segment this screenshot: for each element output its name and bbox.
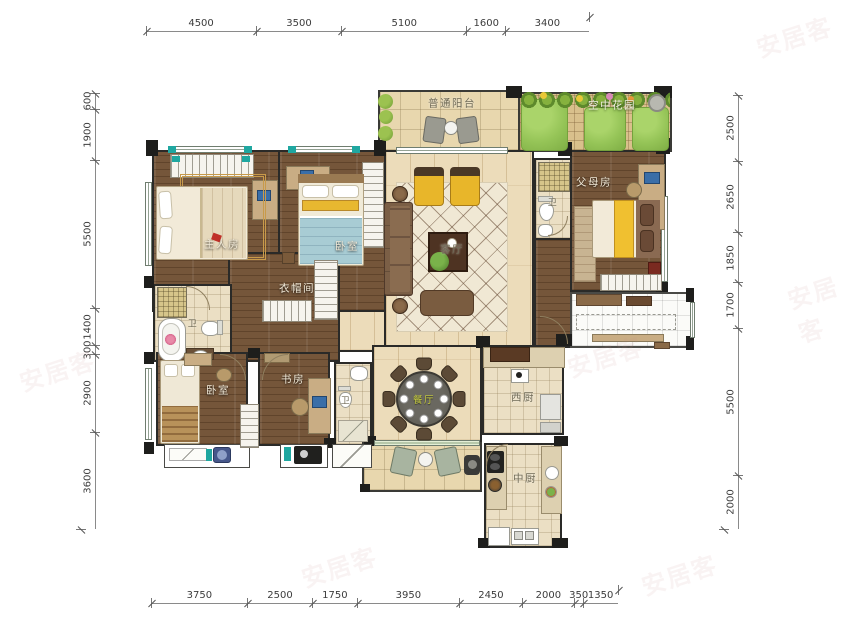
grass-patch	[584, 107, 626, 151]
sink-basin-icon	[525, 531, 534, 540]
label-chinese-kitchen: 中厨	[513, 471, 537, 486]
bay-sill-panel	[169, 448, 207, 461]
window-living-balcony	[396, 147, 508, 154]
dim-bottom-5: 2450	[478, 590, 503, 601]
dryer-icon	[294, 446, 322, 464]
wall-pier	[374, 140, 386, 156]
watermark-text: 安居客	[637, 545, 722, 602]
dim-bottom-1: 3750	[187, 590, 212, 601]
plate-icon	[440, 395, 449, 404]
kitchen-table	[488, 527, 510, 546]
pillow	[640, 204, 654, 226]
flower-decor-icon	[165, 334, 176, 345]
wall-pier	[146, 140, 158, 156]
dim-left-4: 1400	[83, 314, 94, 339]
label-sky-garden: 空中花园	[588, 98, 636, 113]
entry-door-leaf	[654, 342, 670, 349]
watermark-text: 安居客	[783, 265, 850, 349]
label-bedroom-3: 卧室	[206, 383, 230, 398]
fridge-icon	[540, 394, 561, 420]
stone-circle	[648, 94, 666, 112]
dim-right-1: 2500	[726, 116, 737, 141]
label-dining: 餐厅	[413, 392, 435, 406]
dim-top-5: 3400	[535, 18, 560, 29]
dim-top-2: 3500	[286, 18, 311, 29]
dim-bottom-8: 1350	[588, 590, 613, 601]
balcony-chair	[422, 116, 446, 145]
planter-icon	[379, 110, 393, 124]
label-bath-3: 卫	[341, 394, 352, 407]
shower-icon	[538, 162, 570, 192]
plate-icon	[420, 375, 429, 384]
wall-pier	[686, 336, 694, 350]
dim-right-2: 2650	[726, 185, 737, 210]
wall-pier	[360, 484, 370, 492]
pillow	[164, 364, 178, 377]
laptop-icon	[644, 172, 660, 184]
dim-bottom-2: 2500	[267, 590, 292, 601]
laundry-item	[284, 447, 291, 461]
dimension-ruler-left: 600 1900 5500 1400 300 2900 3600	[81, 93, 96, 529]
wardrobe-accent	[242, 156, 250, 162]
wall-pier	[686, 288, 694, 302]
bed-runner-yellow	[614, 200, 634, 258]
label-master-bedroom: 主人房	[204, 237, 240, 252]
window-accent	[288, 146, 296, 153]
wardrobe	[240, 404, 259, 448]
pillow	[158, 226, 173, 255]
blanket-patterned	[162, 406, 198, 442]
window-bedroom3-left	[145, 368, 152, 440]
sofa-cushions	[390, 206, 410, 292]
pillow	[640, 230, 654, 252]
wardrobe	[362, 162, 384, 248]
wardrobe	[262, 300, 312, 322]
dim-right-3: 1850	[726, 245, 737, 270]
dim-bottom-3: 1750	[322, 590, 347, 601]
wardrobe	[314, 260, 338, 320]
wardrobe-accent	[172, 156, 180, 162]
laptop-icon	[312, 396, 327, 408]
armchair-back	[450, 167, 480, 176]
washer-drum-icon	[217, 450, 227, 460]
plate-icon	[545, 466, 559, 480]
sink-basin-icon	[514, 531, 523, 540]
window-accent	[352, 146, 360, 153]
dining-chair	[416, 428, 432, 441]
bed-runner	[302, 200, 359, 211]
side-table	[392, 298, 408, 314]
kitchen-counter	[541, 446, 562, 514]
plate-icon	[400, 395, 409, 404]
label-balcony: 普通阳台	[428, 96, 476, 111]
wall-pier	[248, 348, 260, 358]
nightstand	[282, 252, 295, 264]
pillow	[302, 185, 329, 198]
stool	[626, 182, 642, 198]
dressing-table	[184, 353, 212, 366]
window-accent	[168, 146, 176, 153]
window-landing-right	[690, 302, 695, 338]
entry-shelf	[592, 334, 664, 342]
floorplan-canvas: 4500 3500 5100 1600 3400 3750 2500 1750 …	[0, 0, 850, 638]
dim-right-6: 2000	[726, 489, 737, 514]
dim-left-2: 1900	[83, 122, 94, 147]
flower-icon	[576, 95, 583, 102]
shoe-cabinet	[576, 294, 622, 306]
shoe-cabinet	[626, 296, 652, 306]
window-master-left	[145, 182, 152, 266]
dish-icon	[545, 486, 557, 498]
counter-dark	[490, 347, 530, 362]
desk-chair	[291, 398, 309, 416]
dimension-ruler-right: 2500 2650 1850 1700 5500 2000	[724, 95, 739, 529]
label-master-bath: 卫	[188, 317, 199, 330]
window-terrace-sill	[374, 440, 480, 446]
toilet-tank-icon	[338, 386, 351, 391]
label-cloakroom: 衣帽间	[279, 281, 315, 296]
bay-window-3	[332, 444, 372, 468]
pillow	[332, 185, 359, 198]
entry-dashed-zone	[576, 314, 676, 330]
wall-pier	[144, 276, 154, 288]
side-table	[392, 186, 408, 202]
plate-icon	[420, 415, 429, 424]
flower-icon	[540, 92, 547, 99]
headboard	[298, 174, 364, 183]
dryer-knob-icon	[300, 450, 308, 458]
dim-right-4: 1700	[726, 293, 737, 318]
planter-icon	[378, 94, 393, 109]
dim-top-3: 5100	[391, 18, 416, 29]
wall-pier	[144, 442, 154, 454]
dim-top-4: 1600	[473, 18, 498, 29]
bath-mat	[338, 420, 368, 442]
dimension-ruler-bottom: 3750 2500 1750 3950 2450 2000 350 1350	[151, 590, 618, 604]
sink-icon	[350, 366, 368, 381]
balcony-table	[444, 121, 458, 135]
outdoor-sink-bowl-icon	[468, 460, 477, 469]
wall-pier	[552, 538, 568, 548]
shower-icon	[157, 287, 187, 318]
dining-chair	[383, 391, 396, 407]
dim-right-5: 5500	[726, 389, 737, 414]
cabinet	[540, 422, 561, 433]
dim-left-3: 5500	[83, 222, 94, 247]
pillow	[158, 191, 173, 220]
window-accent	[244, 146, 252, 153]
dim-left-7: 3600	[83, 468, 94, 493]
dining-chair	[453, 391, 466, 407]
label-bedroom-2: 卧室	[335, 239, 359, 254]
label-bath-2: 卫	[548, 196, 559, 209]
dimension-ruler-top: 4500 3500 5100 1600 3400	[146, 17, 589, 32]
toilet-tank-icon	[217, 320, 223, 335]
dim-top-1: 4500	[188, 18, 213, 29]
window-bedroom2-top	[288, 146, 360, 153]
appliance-knob-icon	[516, 372, 522, 378]
watermark-text: 安居客	[752, 7, 837, 64]
armchair-back	[414, 167, 444, 176]
watermark-text: 安居客	[297, 537, 382, 594]
low-cabinet	[600, 274, 662, 291]
wall-pier	[144, 352, 154, 364]
label-west-kitchen: 西厨	[511, 390, 535, 405]
pot-icon	[488, 478, 502, 492]
label-living: 客厅	[440, 242, 464, 257]
label-parents: 父母房	[576, 175, 612, 190]
laundry-item	[206, 449, 212, 461]
terrace-table	[418, 452, 433, 467]
label-study: 书房	[281, 372, 305, 387]
dim-left-6: 2900	[83, 380, 94, 405]
wall-pier	[554, 436, 568, 446]
dim-bottom-4: 3950	[396, 590, 421, 601]
window-master-top	[168, 146, 252, 153]
dim-bottom-6: 2000	[536, 590, 561, 601]
balcony-chair	[455, 116, 479, 145]
tv-bench	[420, 290, 474, 316]
grass-patch	[632, 107, 669, 151]
dining-chair	[416, 358, 432, 371]
planter-icon	[378, 126, 393, 141]
